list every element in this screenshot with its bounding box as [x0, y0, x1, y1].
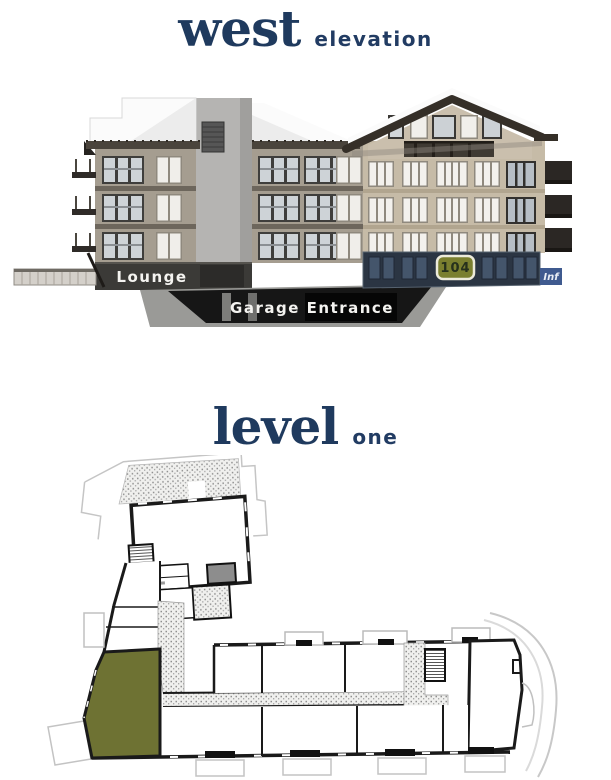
lounge-level: Lounge — [95, 262, 252, 290]
ground-floor-band: 104 Inf — [363, 252, 562, 288]
level-one-floor-plan — [0, 455, 611, 780]
stair-core — [404, 643, 448, 707]
level-title-subword: one — [352, 425, 398, 449]
main-corridor — [163, 691, 404, 707]
selected-unit-highlight[interactable] — [84, 649, 160, 758]
right-unit-balcony-outline — [522, 683, 534, 727]
info-badge-label: Inf — [543, 272, 560, 283]
garage-entrance-label: Garage Entrance — [230, 299, 394, 317]
connector-corridor-hatch — [158, 601, 184, 693]
stone-wall — [14, 253, 104, 287]
garage-entrance: Garage Entrance — [140, 284, 448, 327]
left-balconies — [72, 141, 96, 252]
west-elevation-rendering: Lounge Garage Entrance — [0, 85, 611, 357]
elevator-room — [207, 563, 236, 584]
west-title-word: west — [178, 4, 300, 54]
level-one-title: level one — [0, 402, 611, 452]
lounge-label: Lounge — [116, 268, 187, 286]
elevator-tower — [196, 98, 252, 262]
right-wing-windows — [368, 161, 536, 259]
upper-wing — [78, 455, 272, 626]
west-elevation-title: west elevation — [0, 4, 611, 54]
left-wing-balcony-outline — [84, 613, 104, 647]
unit-104-badge-label: 104 — [440, 261, 470, 276]
level-title-word: level — [213, 402, 339, 452]
info-badge[interactable]: Inf — [540, 268, 562, 285]
lobby-hatch-room — [192, 584, 231, 619]
right-balconies — [545, 161, 572, 252]
unit-104-badge[interactable]: 104 — [437, 256, 474, 279]
west-title-subword: elevation — [314, 27, 432, 51]
right-end-unit — [468, 640, 534, 752]
upper-unit-row — [214, 628, 512, 693]
